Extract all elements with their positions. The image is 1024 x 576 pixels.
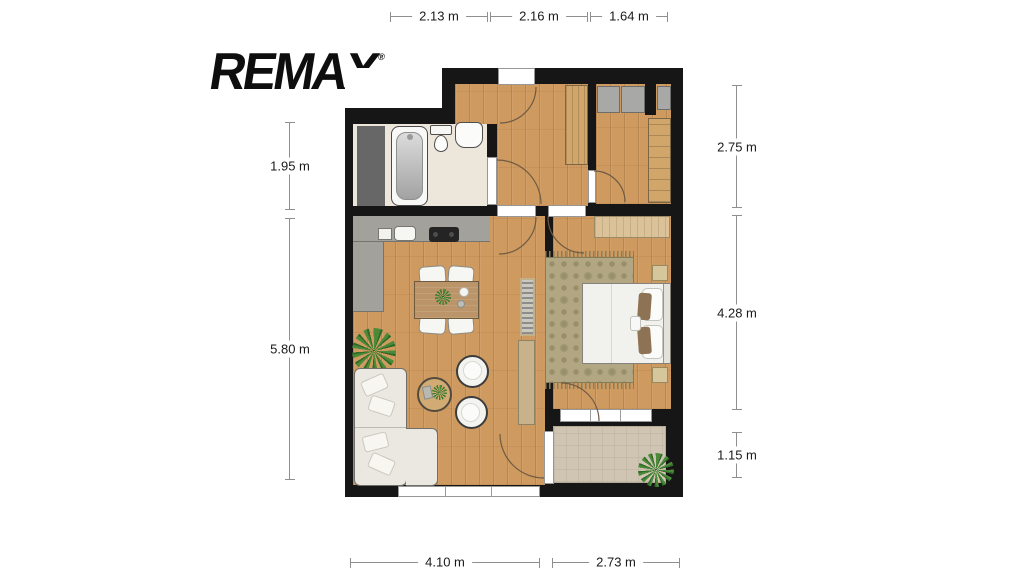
living-room-window (398, 486, 540, 497)
rug-fringe (545, 383, 634, 389)
toilet (434, 135, 448, 152)
nightstand (652, 367, 668, 383)
bathtub (391, 126, 428, 206)
bedroom-sideboard (594, 216, 670, 238)
headboard (663, 284, 670, 363)
rug-fringe (545, 251, 634, 257)
bathroom-door (487, 157, 497, 205)
floor-plan (0, 0, 1024, 576)
balcony-plant (638, 453, 674, 487)
toilet-tank (430, 125, 452, 135)
storage-door (588, 170, 596, 203)
storage-cabinet (657, 86, 671, 110)
washbasin (455, 122, 483, 148)
kitchen-counter-top (353, 216, 490, 242)
bowl (457, 300, 465, 308)
cooktop (429, 227, 459, 242)
balcony-window-bedroom (560, 409, 652, 422)
tall-wardrobe (648, 118, 671, 203)
kitchen-sink (394, 226, 416, 241)
storage-cabinet (597, 86, 620, 113)
entrance-door (498, 68, 535, 85)
bedroom-door (548, 205, 586, 217)
coffee-table-plant (432, 385, 447, 400)
radiator (520, 278, 535, 336)
sofa-chaise (406, 428, 438, 486)
sink-drainer (378, 228, 392, 240)
table-plant (435, 289, 451, 305)
hall-wardrobe (565, 85, 588, 165)
wall-storage-stub (645, 84, 656, 115)
storage-cabinet (621, 86, 645, 113)
floorplan-page: REMAX® 2.13 m 2.16 m 1.64 m 1.95 m 5.80 … (0, 0, 1024, 576)
living-room-door (497, 205, 536, 217)
bed-tray (630, 316, 641, 331)
accent-pillow (637, 327, 652, 355)
nightstand (652, 265, 668, 281)
balcony-door-living (544, 431, 554, 484)
pouf-top (463, 361, 482, 380)
bed (582, 283, 671, 364)
kitchen-counter-side (353, 242, 384, 312)
building-notch (345, 68, 442, 108)
pouf-top (461, 403, 480, 422)
plate (459, 287, 469, 297)
tv-sideboard (518, 340, 535, 425)
shower-area (357, 126, 385, 206)
